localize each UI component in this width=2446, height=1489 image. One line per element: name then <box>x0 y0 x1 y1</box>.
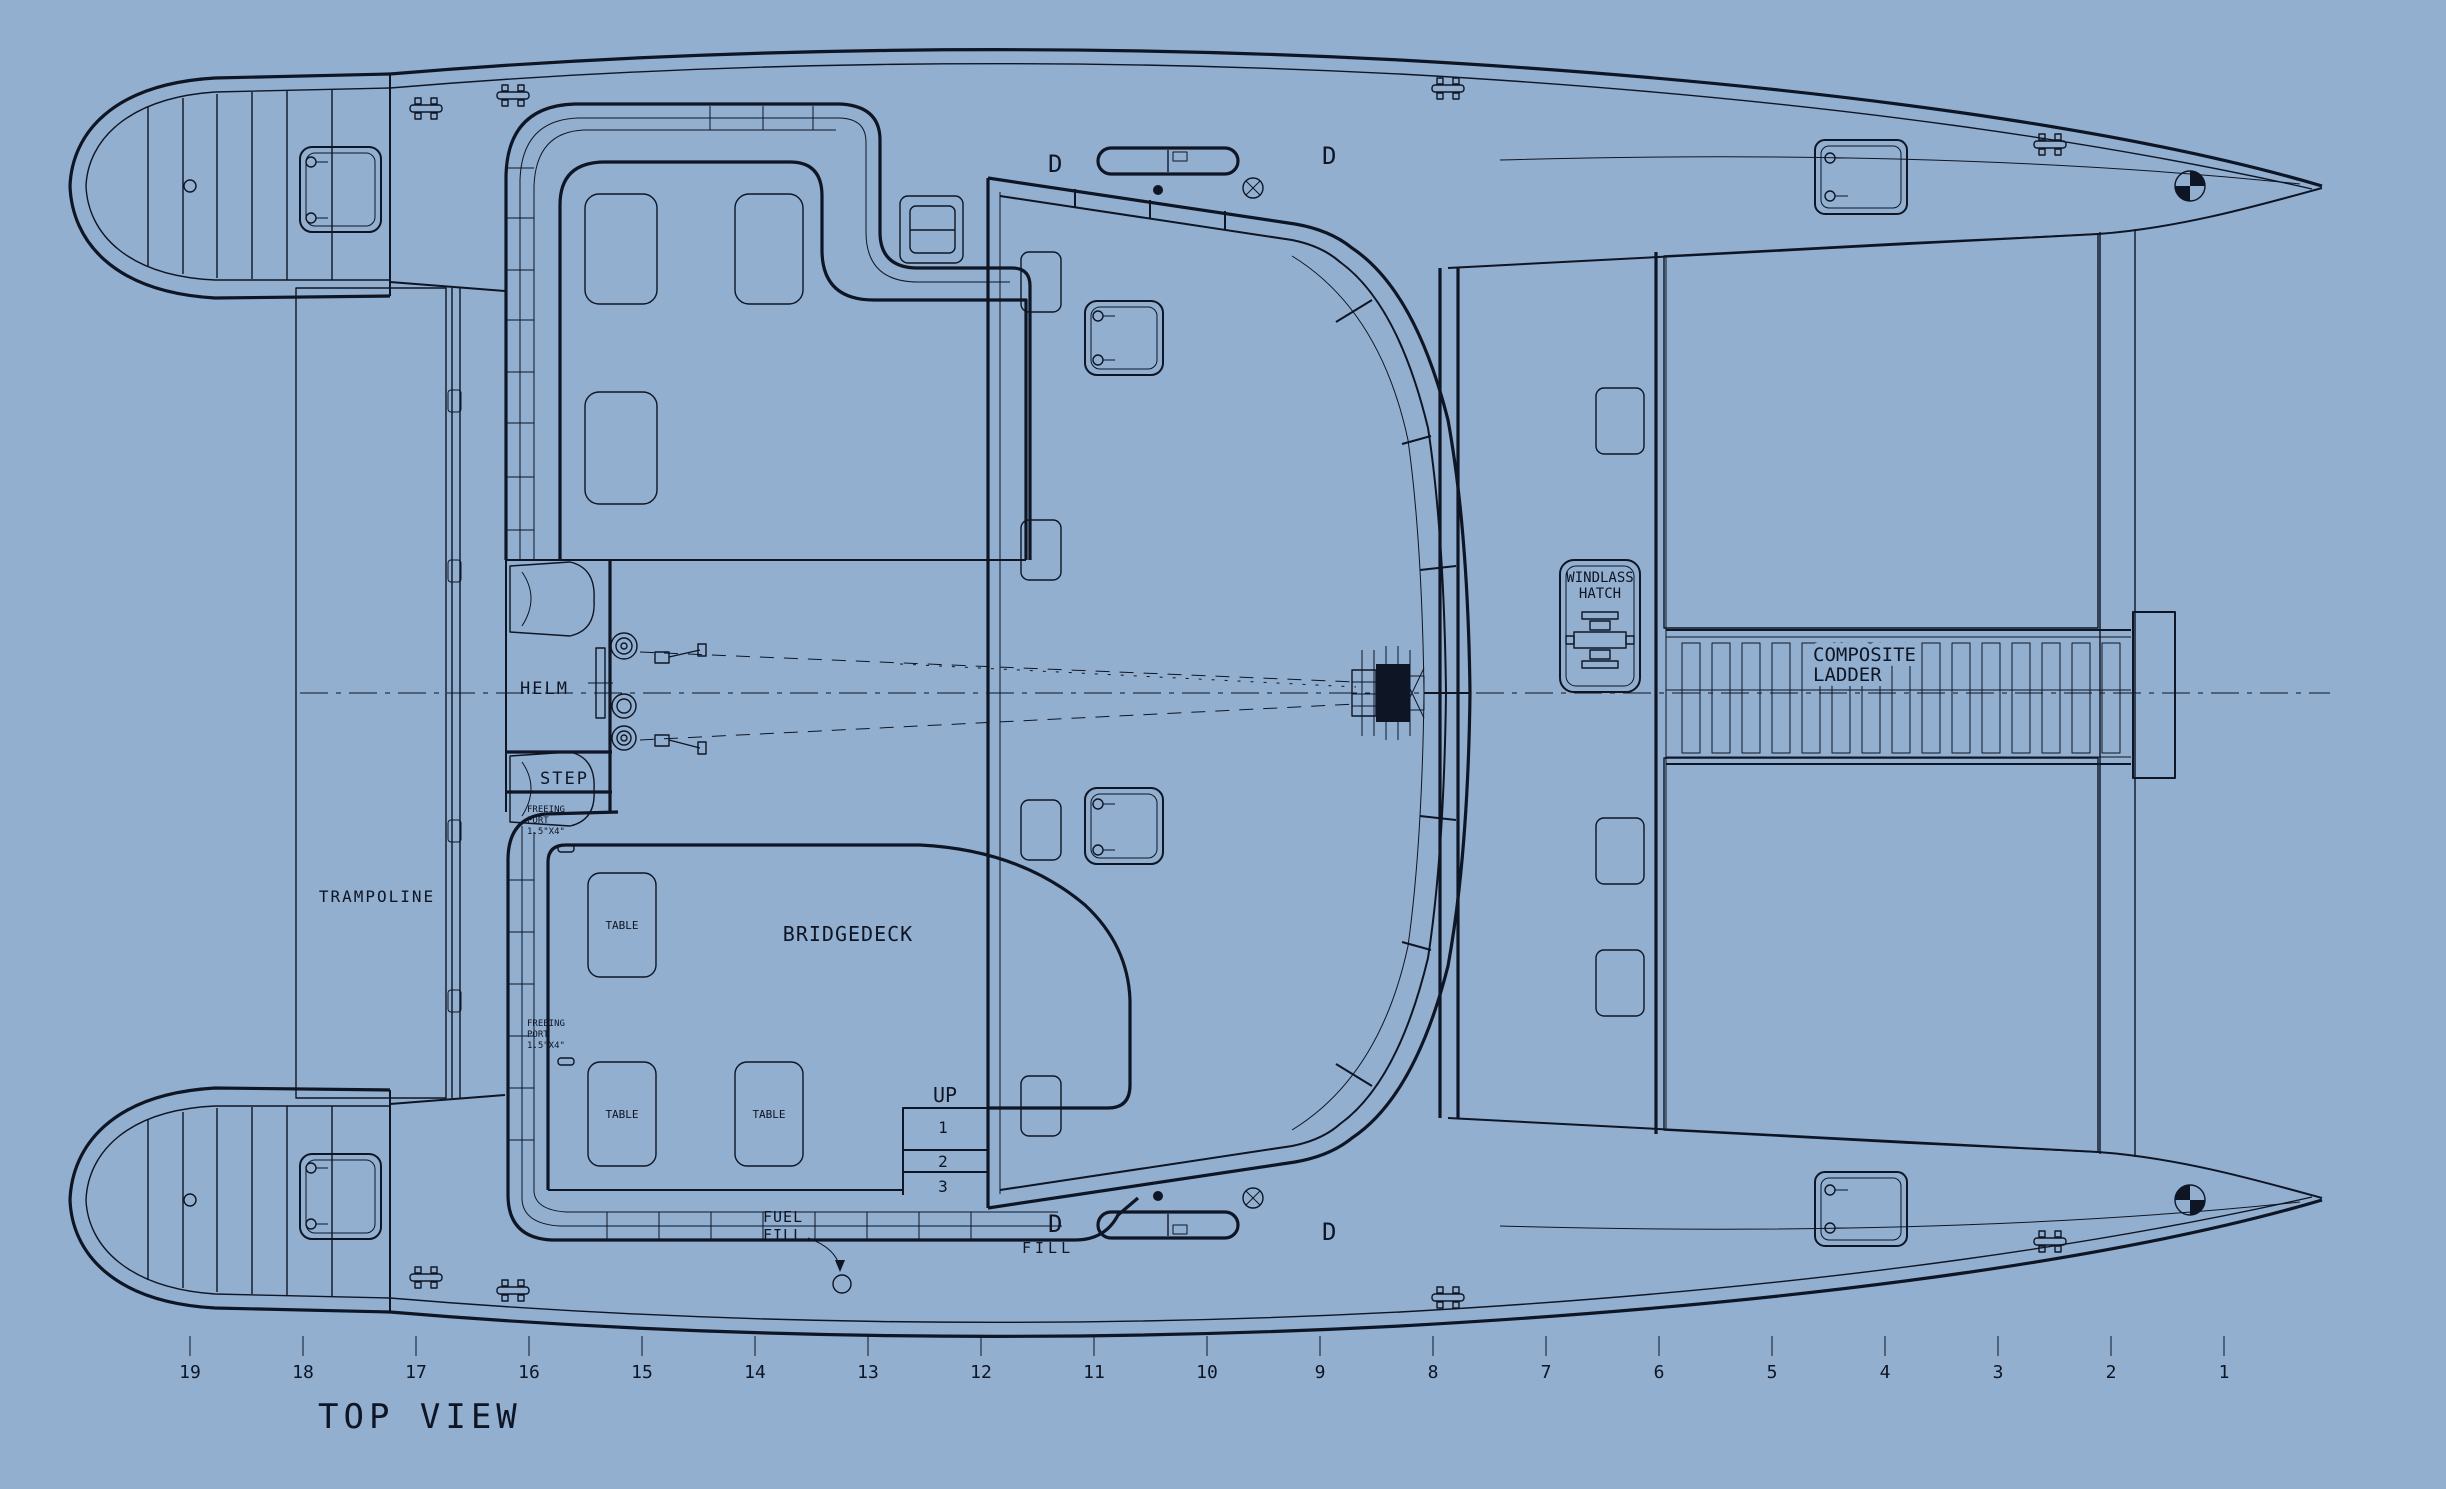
svg-text:5: 5 <box>1767 1362 1778 1383</box>
catamaran-top-view-drawing: COMPOSITE LADDER WINDLASS HATCH <box>0 0 2446 1489</box>
view-title: TOP VIEW <box>318 1397 522 1437</box>
svg-text:14: 14 <box>744 1362 766 1383</box>
helm-label: HELM <box>520 679 569 699</box>
svg-text:FILL: FILL <box>763 1226 803 1244</box>
fill-label: FILL <box>1022 1239 1074 1257</box>
svg-text:1: 1 <box>2219 1362 2230 1383</box>
svg-text:15: 15 <box>631 1362 653 1383</box>
d-marker-top-right: D <box>1322 142 1336 170</box>
bow-datum-symbol <box>2175 171 2205 201</box>
d-marker-bottom-left: D <box>1048 1210 1062 1238</box>
svg-text:1.5"X4": 1.5"X4" <box>527 827 565 837</box>
table-label-2: TABLE <box>605 1108 638 1121</box>
drawing-background <box>0 0 2446 1489</box>
table-label-3: TABLE <box>752 1108 785 1121</box>
svg-text:10: 10 <box>1196 1362 1218 1383</box>
svg-text:11: 11 <box>1083 1362 1105 1383</box>
svg-text:8: 8 <box>1428 1362 1439 1383</box>
svg-text:FUEL: FUEL <box>763 1208 803 1226</box>
trampoline-label: TRAMPOLINE <box>319 887 435 906</box>
svg-text:PORT: PORT <box>527 1030 549 1040</box>
svg-text:PORT: PORT <box>527 816 549 826</box>
svg-text:16: 16 <box>518 1362 540 1383</box>
step-number-2: 2 <box>938 1152 948 1171</box>
table-label-1: TABLE <box>605 919 638 932</box>
step-label: STEP <box>540 769 589 789</box>
composite-ladder-label-line1: COMPOSITE <box>1813 644 1916 666</box>
step-number-1: 1 <box>938 1118 948 1137</box>
svg-text:19: 19 <box>179 1362 201 1383</box>
d-marker-top-left: D <box>1048 150 1062 178</box>
drawing-canvas: COMPOSITE LADDER WINDLASS HATCH <box>0 0 2446 1489</box>
d-marker-bottom-right: D <box>1322 1218 1336 1246</box>
svg-text:6: 6 <box>1654 1362 1665 1383</box>
deck-fitting-small <box>1153 185 1163 195</box>
up-label: UP <box>933 1083 957 1107</box>
svg-text:7: 7 <box>1541 1362 1552 1383</box>
windlass-hatch-label-line2: HATCH <box>1579 586 1621 602</box>
bridgedeck-label: BRIDGEDECK <box>783 922 913 946</box>
step-number-3: 3 <box>938 1177 948 1196</box>
svg-text:3: 3 <box>1993 1362 2004 1383</box>
svg-text:4: 4 <box>1880 1362 1891 1383</box>
svg-text:13: 13 <box>857 1362 879 1383</box>
svg-text:17: 17 <box>405 1362 427 1383</box>
svg-text:12: 12 <box>970 1362 992 1383</box>
windlass-hatch-label-line1: WINDLASS <box>1566 570 1633 586</box>
svg-text:1.5"X4": 1.5"X4" <box>527 1041 565 1051</box>
composite-ladder-label-line2: LADDER <box>1813 664 1882 686</box>
svg-text:2: 2 <box>2106 1362 2117 1383</box>
svg-text:18: 18 <box>292 1362 314 1383</box>
svg-text:FREEING: FREEING <box>527 1019 565 1029</box>
svg-text:FREEING: FREEING <box>527 805 565 815</box>
svg-text:9: 9 <box>1315 1362 1326 1383</box>
